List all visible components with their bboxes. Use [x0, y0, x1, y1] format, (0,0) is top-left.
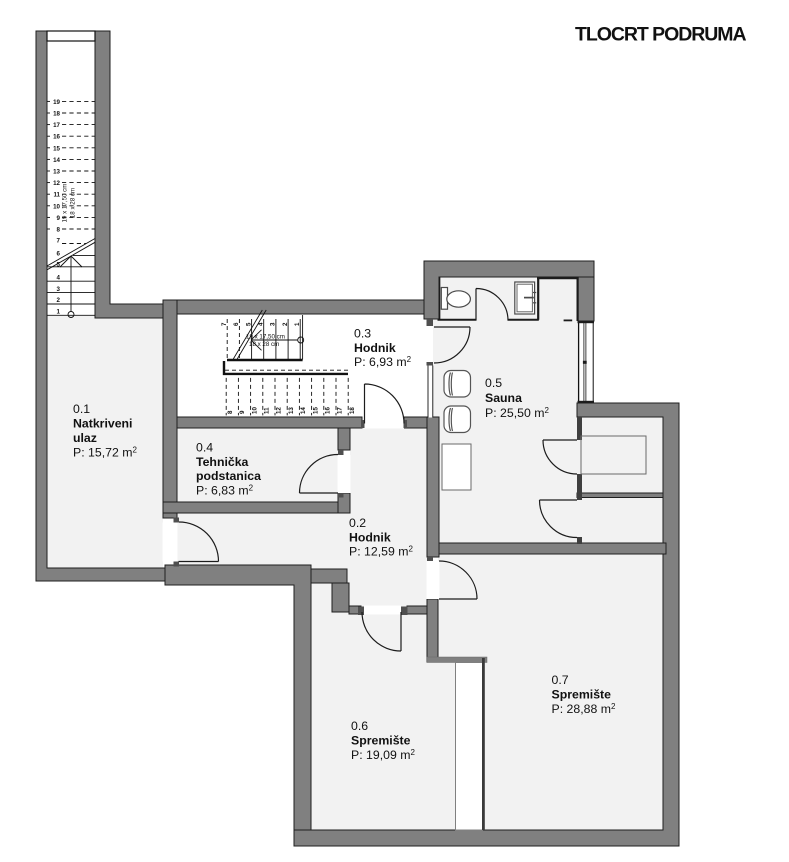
svg-text:Spremište: Spremište — [552, 688, 612, 702]
svg-text:18 x 28 cm: 18 x 28 cm — [70, 188, 77, 218]
svg-text:podstanica: podstanica — [196, 469, 261, 483]
svg-text:P: 6,83 m2: P: 6,83 m2 — [196, 484, 254, 498]
svg-text:0.6: 0.6 — [351, 719, 368, 733]
svg-text:Hodnik: Hodnik — [354, 341, 396, 355]
svg-text:5: 5 — [245, 322, 252, 326]
svg-text:8: 8 — [57, 227, 61, 234]
svg-text:9: 9 — [239, 410, 246, 414]
svg-text:Natkriveni: Natkriveni — [73, 416, 132, 430]
svg-text:P: 6,93 m2: P: 6,93 m2 — [354, 355, 412, 369]
svg-text:14: 14 — [300, 407, 307, 414]
svg-text:9: 9 — [57, 215, 61, 222]
svg-text:2: 2 — [57, 297, 61, 304]
svg-text:P: 15,72 m2: P: 15,72 m2 — [73, 446, 137, 460]
svg-text:5: 5 — [57, 262, 61, 269]
svg-text:P: 19,09 m2: P: 19,09 m2 — [351, 748, 415, 762]
svg-text:16: 16 — [53, 134, 60, 141]
svg-text:P: 25,50 m2: P: 25,50 m2 — [485, 406, 549, 420]
svg-text:7: 7 — [57, 238, 61, 245]
svg-text:1: 1 — [294, 322, 301, 326]
svg-text:18: 18 — [349, 407, 356, 414]
svg-text:11: 11 — [53, 192, 60, 199]
svg-text:8: 8 — [227, 410, 234, 414]
svg-text:Hodnik: Hodnik — [349, 530, 391, 544]
svg-text:P: 12,59 m2: P: 12,59 m2 — [349, 545, 413, 559]
svg-text:0.2: 0.2 — [349, 516, 366, 530]
svg-text:P: 28,88 m2: P: 28,88 m2 — [552, 702, 616, 716]
svg-text:4: 4 — [57, 274, 61, 281]
svg-text:TLOCRT PODRUMA: TLOCRT PODRUMA — [575, 24, 746, 46]
svg-text:4: 4 — [258, 322, 265, 326]
svg-text:13: 13 — [288, 407, 295, 414]
svg-text:Spremište: Spremište — [351, 734, 411, 748]
svg-text:14: 14 — [53, 157, 60, 164]
svg-text:18 x 28 cm: 18 x 28 cm — [249, 341, 279, 348]
svg-text:0.7: 0.7 — [552, 673, 569, 687]
svg-text:16: 16 — [325, 407, 332, 414]
svg-text:17: 17 — [337, 407, 344, 414]
svg-text:11: 11 — [264, 407, 271, 414]
svg-text:Tehnička: Tehnička — [196, 455, 249, 469]
svg-text:12: 12 — [53, 180, 60, 187]
svg-text:15: 15 — [53, 145, 60, 152]
svg-text:19 x 17,50 cm: 19 x 17,50 cm — [62, 184, 69, 223]
svg-text:7: 7 — [221, 322, 228, 326]
svg-text:Sauna: Sauna — [485, 391, 522, 405]
svg-text:6: 6 — [233, 322, 240, 326]
svg-text:18: 18 — [53, 111, 60, 118]
svg-text:3: 3 — [270, 322, 277, 326]
svg-text:3: 3 — [57, 286, 61, 293]
svg-text:ulaz: ulaz — [73, 431, 97, 445]
svg-text:12: 12 — [276, 407, 283, 414]
svg-text:10: 10 — [53, 203, 60, 210]
svg-text:17: 17 — [53, 122, 60, 129]
svg-text:13: 13 — [53, 169, 60, 176]
svg-text:1: 1 — [57, 309, 61, 316]
svg-text:10: 10 — [251, 407, 258, 414]
svg-text:0.3: 0.3 — [354, 327, 371, 341]
svg-text:15: 15 — [312, 407, 319, 414]
svg-text:0.1: 0.1 — [73, 402, 90, 416]
svg-text:6: 6 — [57, 251, 61, 258]
svg-text:19 x 17,50 cm: 19 x 17,50 cm — [246, 334, 285, 341]
svg-text:0.4: 0.4 — [196, 440, 213, 454]
svg-text:2: 2 — [282, 322, 289, 326]
svg-text:0.5: 0.5 — [485, 376, 502, 390]
svg-text:19: 19 — [53, 99, 60, 106]
